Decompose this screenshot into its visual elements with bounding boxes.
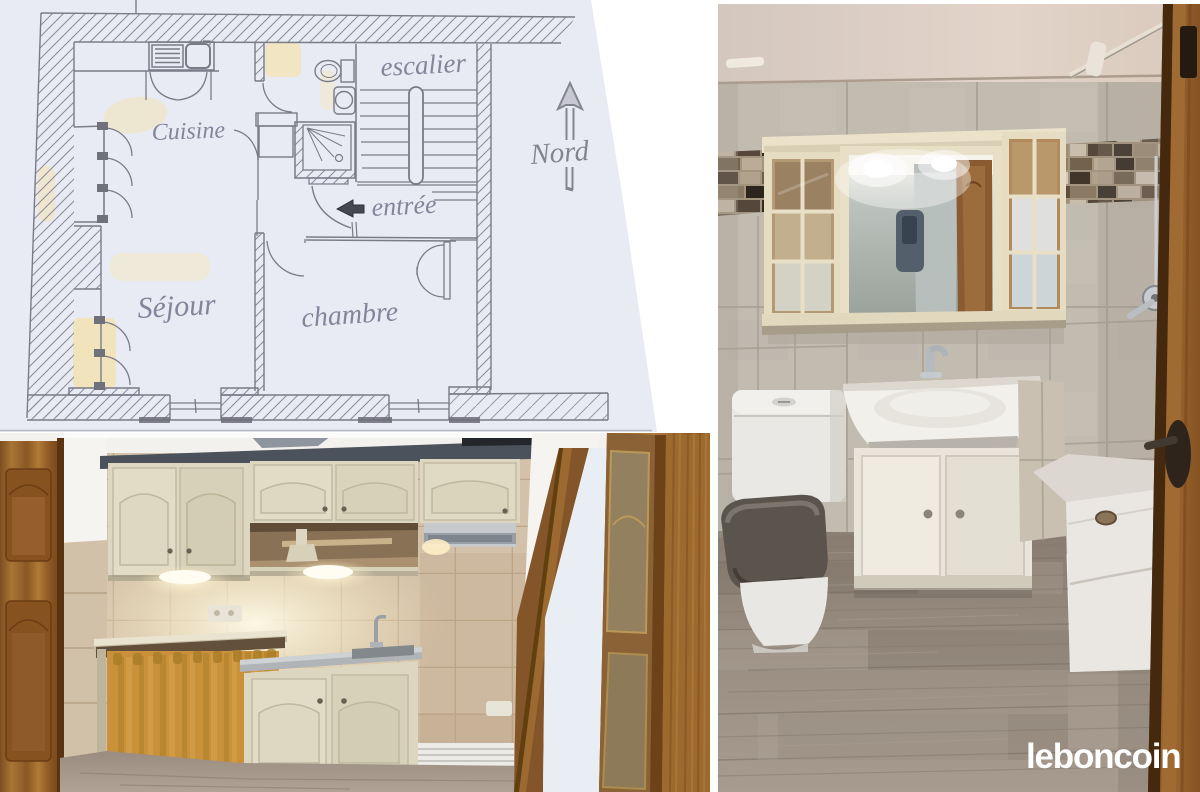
svg-text:Séjour: Séjour	[137, 288, 217, 325]
svg-text:Cuisine: Cuisine	[151, 117, 226, 146]
svg-text:entrée: entrée	[371, 190, 437, 222]
svg-text:Nord: Nord	[528, 135, 590, 171]
svg-text:escalier: escalier	[380, 48, 467, 82]
